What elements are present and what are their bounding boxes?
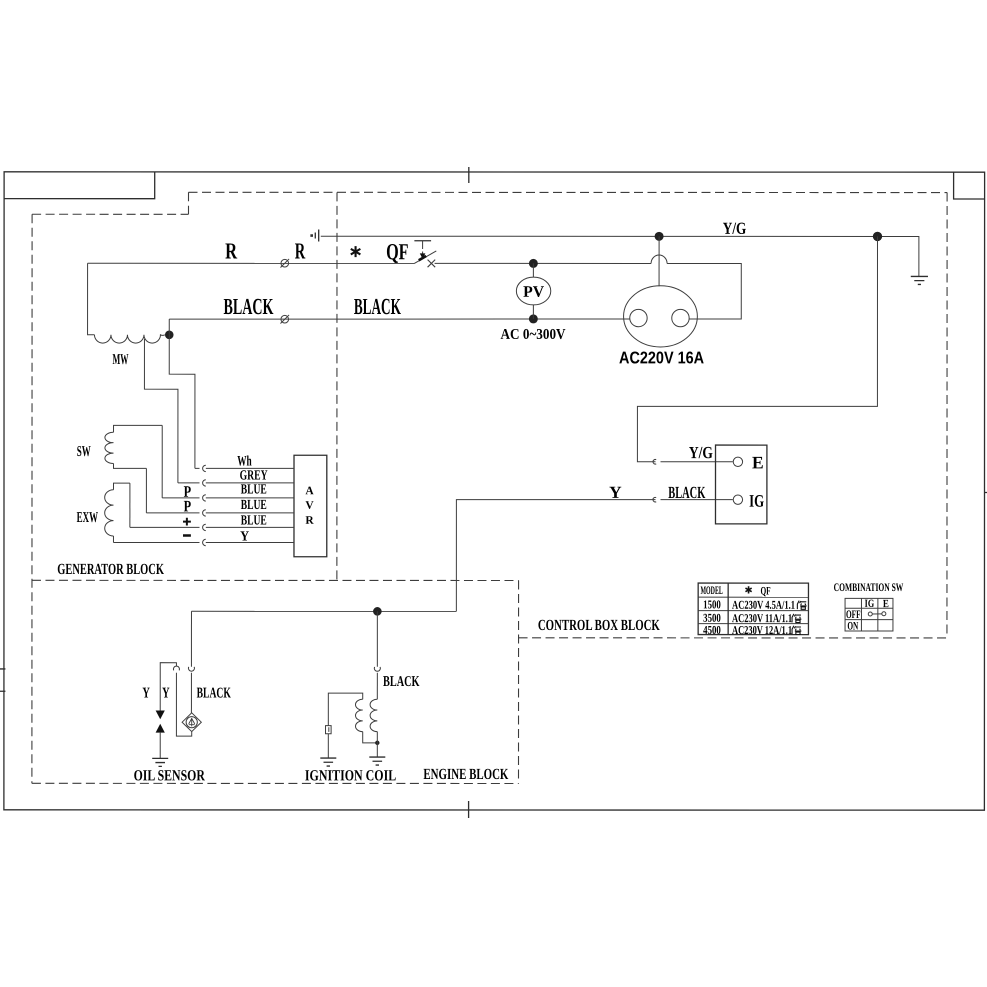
svg-text:IG: IG: [865, 598, 875, 610]
svg-text:Wh: Wh: [237, 454, 252, 470]
svg-text:QF: QF: [386, 239, 409, 264]
svg-text:R: R: [225, 239, 237, 264]
svg-text:Y: Y: [162, 686, 170, 702]
svg-text:ENGINE BLOCK: ENGINE BLOCK: [423, 766, 508, 783]
svg-text:BLACK: BLACK: [668, 483, 705, 502]
svg-text:E: E: [752, 452, 764, 472]
svg-text:BLUE: BLUE: [241, 498, 267, 513]
svg-text:EXW: EXW: [77, 510, 98, 526]
svg-text:BLACK: BLACK: [223, 294, 273, 319]
svg-text:GREY: GREY: [240, 469, 268, 484]
svg-text:E: E: [883, 598, 889, 610]
svg-text:IGNITION COIL: IGNITION COIL: [305, 767, 396, 784]
svg-text:PV: PV: [523, 284, 544, 301]
svg-text:ON: ON: [847, 620, 858, 632]
svg-text:Y: Y: [609, 483, 622, 502]
svg-text:COMBINATION SW: COMBINATION SW: [834, 582, 904, 594]
svg-text:MW: MW: [113, 352, 129, 368]
svg-text:BLUE: BLUE: [241, 483, 267, 498]
svg-text:Y/G: Y/G: [723, 219, 747, 238]
svg-text:1500: 1500: [703, 597, 721, 611]
svg-text:AC 0~300V: AC 0~300V: [501, 327, 566, 343]
svg-text:Y/G: Y/G: [689, 443, 713, 462]
svg-text:AC230V 4.5A/1.1: AC230V 4.5A/1.1: [732, 598, 795, 612]
svg-text:OFF: OFF: [846, 609, 861, 621]
svg-text:R: R: [305, 515, 314, 527]
svg-text:AC220V 16A: AC220V 16A: [619, 348, 704, 367]
svg-text:SW: SW: [77, 444, 91, 460]
svg-text:Y: Y: [142, 686, 150, 702]
svg-text:BLACK: BLACK: [354, 294, 401, 319]
svg-text:R: R: [295, 239, 306, 264]
svg-text:MODEL: MODEL: [700, 585, 723, 597]
svg-text:4500: 4500: [703, 623, 721, 637]
svg-text:BLACK: BLACK: [383, 674, 420, 690]
svg-text:GENERATOR BLOCK: GENERATOR BLOCK: [57, 561, 164, 578]
svg-text:CONTROL BOX BLOCK: CONTROL BOX BLOCK: [538, 617, 660, 634]
svg-text:AC230V 12A/1.1: AC230V 12A/1.1: [732, 623, 792, 637]
svg-text:Y: Y: [240, 530, 249, 545]
svg-text:OIL SENSOR: OIL SENSOR: [134, 767, 206, 784]
svg-text:BLACK: BLACK: [197, 686, 231, 702]
svg-text:V: V: [305, 500, 314, 512]
svg-text:P: P: [184, 498, 192, 515]
svg-text:QF: QF: [760, 585, 770, 597]
svg-text:BLUE: BLUE: [241, 513, 267, 528]
svg-text:A: A: [305, 485, 314, 497]
svg-text:IG: IG: [749, 491, 764, 511]
